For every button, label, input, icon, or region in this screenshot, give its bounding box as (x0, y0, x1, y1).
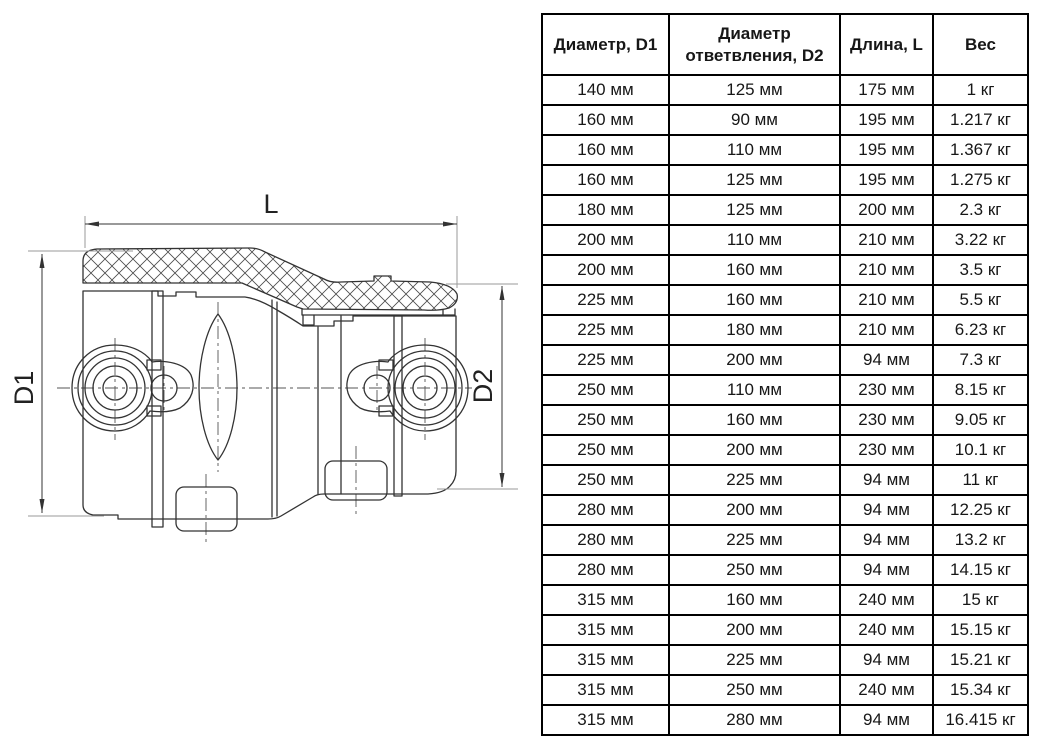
cell-col-0: 280 мм (542, 495, 669, 525)
cell-col-0: 315 мм (542, 675, 669, 705)
cell-col-1: 200 мм (669, 345, 840, 375)
cell-col-3: 7.3 кг (933, 345, 1028, 375)
cell-col-2: 94 мм (840, 465, 933, 495)
header-row: Диаметр, D1Диаметр ответвления, D2Длина,… (542, 14, 1028, 75)
cell-col-3: 15 кг (933, 585, 1028, 615)
table-row: 250 мм110 мм230 мм8.15 кг (542, 375, 1028, 405)
technical-drawing: L D1 D2 (0, 0, 535, 751)
cell-col-0: 180 мм (542, 195, 669, 225)
table-row: 160 мм90 мм195 мм1.217 кг (542, 105, 1028, 135)
cell-col-3: 8.15 кг (933, 375, 1028, 405)
cell-col-3: 2.3 кг (933, 195, 1028, 225)
cell-col-1: 110 мм (669, 225, 840, 255)
cell-col-3: 12.25 кг (933, 495, 1028, 525)
cell-col-0: 225 мм (542, 345, 669, 375)
table-row: 180 мм125 мм200 мм2.3 кг (542, 195, 1028, 225)
fitting-body (72, 248, 468, 531)
cell-col-2: 195 мм (840, 165, 933, 195)
cell-col-0: 280 мм (542, 555, 669, 585)
table-row: 315 мм250 мм240 мм15.34 кг (542, 675, 1028, 705)
cell-col-2: 240 мм (840, 615, 933, 645)
cell-col-2: 230 мм (840, 375, 933, 405)
cell-col-1: 280 мм (669, 705, 840, 735)
cell-col-1: 200 мм (669, 495, 840, 525)
table-header: Диаметр, D1Диаметр ответвления, D2Длина,… (542, 14, 1028, 75)
table-row: 200 мм160 мм210 мм3.5 кг (542, 255, 1028, 285)
collar-notch (303, 315, 314, 325)
cell-col-2: 210 мм (840, 225, 933, 255)
cell-col-3: 15.15 кг (933, 615, 1028, 645)
left-bottom-tab (176, 487, 237, 531)
cell-col-1: 160 мм (669, 285, 840, 315)
cell-col-3: 1.275 кг (933, 165, 1028, 195)
column-header-2: Длина, L (840, 14, 933, 75)
cell-col-2: 94 мм (840, 525, 933, 555)
cell-col-3: 15.34 кг (933, 675, 1028, 705)
cell-col-2: 94 мм (840, 555, 933, 585)
cell-col-1: 160 мм (669, 255, 840, 285)
cell-col-3: 3.22 кг (933, 225, 1028, 255)
cell-col-0: 250 мм (542, 375, 669, 405)
cell-col-0: 315 мм (542, 615, 669, 645)
cell-col-1: 225 мм (669, 525, 840, 555)
cell-col-1: 125 мм (669, 165, 840, 195)
dim-label-length: L (263, 189, 278, 219)
dim-label-d2: D2 (468, 369, 498, 404)
cell-col-1: 200 мм (669, 615, 840, 645)
table-row: 250 мм200 мм230 мм10.1 кг (542, 435, 1028, 465)
cell-col-1: 110 мм (669, 135, 840, 165)
cell-col-2: 230 мм (840, 405, 933, 435)
cell-col-2: 195 мм (840, 135, 933, 165)
cell-col-0: 315 мм (542, 645, 669, 675)
table-body: 140 мм125 мм175 мм1 кг160 мм90 мм195 мм1… (542, 75, 1028, 735)
cell-col-1: 200 мм (669, 435, 840, 465)
cell-col-2: 210 мм (840, 315, 933, 345)
spec-table: Диаметр, D1Диаметр ответвления, D2Длина,… (541, 13, 1029, 736)
table-row: 160 мм125 мм195 мм1.275 кг (542, 165, 1028, 195)
cell-col-1: 160 мм (669, 405, 840, 435)
dim-label-d1: D1 (9, 371, 39, 406)
centerlines (57, 302, 472, 545)
cell-col-0: 200 мм (542, 225, 669, 255)
cell-col-3: 10.1 кг (933, 435, 1028, 465)
table-row: 280 мм225 мм94 мм13.2 кг (542, 525, 1028, 555)
cell-col-1: 180 мм (669, 315, 840, 345)
table-row: 315 мм200 мм240 мм15.15 кг (542, 615, 1028, 645)
cell-col-0: 160 мм (542, 105, 669, 135)
cell-col-3: 1.367 кг (933, 135, 1028, 165)
cell-col-2: 94 мм (840, 345, 933, 375)
cell-col-1: 125 мм (669, 75, 840, 105)
cell-col-0: 225 мм (542, 285, 669, 315)
table-row: 250 мм225 мм94 мм11 кг (542, 465, 1028, 495)
cell-col-3: 9.05 кг (933, 405, 1028, 435)
cell-col-3: 1 кг (933, 75, 1028, 105)
table-row: 280 мм250 мм94 мм14.15 кг (542, 555, 1028, 585)
cell-col-1: 250 мм (669, 555, 840, 585)
cell-col-2: 175 мм (840, 75, 933, 105)
cell-col-2: 210 мм (840, 285, 933, 315)
cell-col-2: 195 мм (840, 105, 933, 135)
table-row: 315 мм160 мм240 мм15 кг (542, 585, 1028, 615)
table-row: 140 мм125 мм175 мм1 кг (542, 75, 1028, 105)
table-row: 200 мм110 мм210 мм3.22 кг (542, 225, 1028, 255)
hatched-band (83, 248, 457, 310)
cell-col-1: 90 мм (669, 105, 840, 135)
table-row: 225 мм200 мм94 мм7.3 кг (542, 345, 1028, 375)
cell-col-0: 160 мм (542, 135, 669, 165)
table-row: 250 мм160 мм230 мм9.05 кг (542, 405, 1028, 435)
cell-col-3: 14.15 кг (933, 555, 1028, 585)
column-header-0: Диаметр, D1 (542, 14, 669, 75)
table-row: 160 мм110 мм195 мм1.367 кг (542, 135, 1028, 165)
cell-col-0: 160 мм (542, 165, 669, 195)
cell-col-1: 225 мм (669, 645, 840, 675)
cell-col-1: 125 мм (669, 195, 840, 225)
cell-col-3: 15.21 кг (933, 645, 1028, 675)
table-row: 225 мм180 мм210 мм6.23 кг (542, 315, 1028, 345)
cell-col-2: 200 мм (840, 195, 933, 225)
cell-col-3: 6.23 кг (933, 315, 1028, 345)
cell-col-3: 11 кг (933, 465, 1028, 495)
cell-col-3: 1.217 кг (933, 105, 1028, 135)
table-row: 280 мм200 мм94 мм12.25 кг (542, 495, 1028, 525)
cell-col-2: 94 мм (840, 495, 933, 525)
cell-col-0: 280 мм (542, 525, 669, 555)
cell-col-0: 250 мм (542, 405, 669, 435)
cell-col-0: 250 мм (542, 435, 669, 465)
cell-col-3: 3.5 кг (933, 255, 1028, 285)
table-row: 225 мм160 мм210 мм5.5 кг (542, 285, 1028, 315)
cell-col-1: 160 мм (669, 585, 840, 615)
cell-col-0: 315 мм (542, 585, 669, 615)
cell-col-3: 5.5 кг (933, 285, 1028, 315)
cell-col-2: 94 мм (840, 705, 933, 735)
cell-col-1: 110 мм (669, 375, 840, 405)
cell-col-2: 240 мм (840, 675, 933, 705)
column-header-3: Вес (933, 14, 1028, 75)
cell-col-0: 225 мм (542, 315, 669, 345)
table-row: 315 мм280 мм94 мм16.415 кг (542, 705, 1028, 735)
cell-col-3: 13.2 кг (933, 525, 1028, 555)
cell-col-0: 200 мм (542, 255, 669, 285)
table-row: 315 мм225 мм94 мм15.21 кг (542, 645, 1028, 675)
cell-col-2: 210 мм (840, 255, 933, 285)
cell-col-1: 225 мм (669, 465, 840, 495)
column-header-1: Диаметр ответвления, D2 (669, 14, 840, 75)
cell-col-0: 140 мм (542, 75, 669, 105)
cell-col-0: 250 мм (542, 465, 669, 495)
cell-col-3: 16.415 кг (933, 705, 1028, 735)
cell-col-2: 230 мм (840, 435, 933, 465)
cell-col-1: 250 мм (669, 675, 840, 705)
cell-col-2: 94 мм (840, 645, 933, 675)
page: L D1 D2 Диаметр, D1Диаметр ответвления, … (0, 0, 1038, 751)
cell-col-0: 315 мм (542, 705, 669, 735)
cell-col-2: 240 мм (840, 585, 933, 615)
